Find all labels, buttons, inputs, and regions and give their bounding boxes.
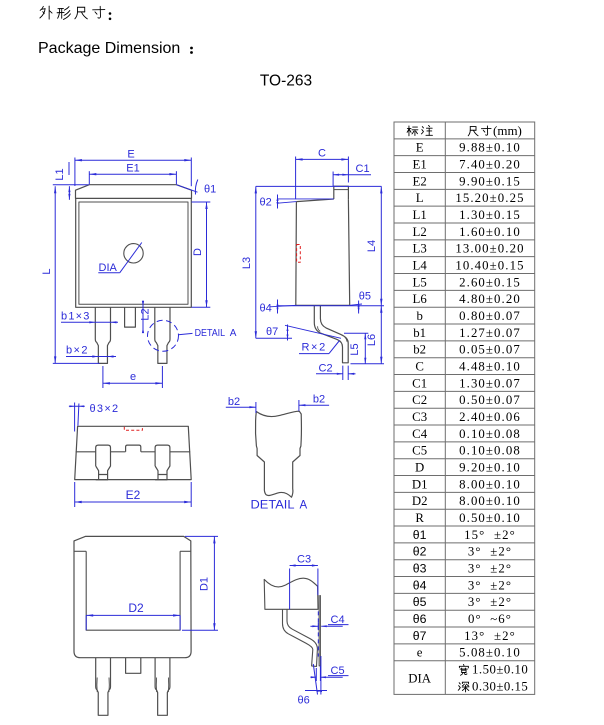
svg-text:D: D (415, 461, 424, 475)
svg-text:E2: E2 (413, 174, 427, 188)
svg-text:C3: C3 (412, 410, 427, 424)
svg-text:4.48±0.10: 4.48±0.10 (459, 359, 521, 373)
svg-text:L5: L5 (413, 275, 427, 289)
svg-text:b1: b1 (413, 326, 426, 340)
svg-text:A: A (300, 500, 308, 512)
svg-text:θ4: θ4 (413, 578, 427, 592)
svg-text:(mm): (mm) (493, 123, 522, 138)
svg-text:b×2: b×2 (66, 345, 89, 357)
svg-text:θ1: θ1 (204, 184, 216, 196)
svg-text:TO-263: TO-263 (260, 73, 312, 90)
svg-text:θ7: θ7 (413, 629, 427, 643)
svg-text:C1: C1 (412, 376, 427, 390)
svg-text:θ2: θ2 (260, 197, 272, 209)
svg-text:L4: L4 (413, 258, 428, 272)
svg-text:1.27±0.07: 1.27±0.07 (459, 326, 521, 340)
svg-text:1.30±0.15: 1.30±0.15 (459, 208, 521, 222)
svg-text:1.50±0.10: 1.50±0.10 (472, 663, 528, 677)
svg-text:L5: L5 (349, 343, 361, 355)
svg-text:L6: L6 (366, 334, 378, 346)
svg-text:3° ±2°: 3° ±2° (468, 595, 512, 609)
svg-text:L1: L1 (54, 168, 66, 180)
svg-text:E: E (127, 148, 134, 160)
svg-text:9.88±0.10: 9.88±0.10 (459, 141, 521, 155)
svg-text:L: L (416, 191, 424, 205)
svg-text:R×2: R×2 (302, 342, 327, 354)
svg-text:θ6: θ6 (413, 612, 427, 626)
svg-text:E1: E1 (413, 157, 427, 171)
svg-text:e: e (417, 646, 423, 660)
svg-text:L3: L3 (413, 242, 427, 256)
svg-text:C4: C4 (412, 427, 428, 441)
svg-text:4.80±0.20: 4.80±0.20 (459, 292, 521, 306)
svg-text:C1: C1 (356, 163, 370, 175)
svg-text:D1: D1 (412, 477, 428, 491)
svg-text:L2: L2 (413, 225, 427, 239)
svg-text:1.30±0.07: 1.30±0.07 (459, 376, 521, 390)
svg-text:C: C (415, 359, 424, 373)
svg-text:L4: L4 (366, 240, 378, 252)
svg-text:E2: E2 (126, 488, 141, 502)
svg-text:C: C (318, 147, 326, 159)
svg-text:b2: b2 (313, 394, 325, 406)
svg-text:Package Dimension: Package Dimension (38, 40, 180, 57)
svg-text:9.20±0.10: 9.20±0.10 (459, 461, 521, 475)
svg-text:3° ±2°: 3° ±2° (468, 562, 512, 576)
svg-text:A: A (230, 328, 237, 339)
svg-text:C5: C5 (331, 665, 345, 677)
svg-text:θ1: θ1 (413, 528, 427, 542)
svg-text:DETAIL: DETAIL (251, 500, 296, 512)
svg-text:0.10±0.08: 0.10±0.08 (459, 427, 521, 441)
svg-text:θ3×2: θ3×2 (90, 403, 120, 415)
svg-text:2.40±0.06: 2.40±0.06 (459, 410, 521, 424)
svg-text:D: D (192, 248, 204, 256)
svg-text:L2: L2 (140, 308, 152, 320)
svg-text:15.20±0.25: 15.20±0.25 (455, 191, 524, 205)
svg-text:2.60±0.15: 2.60±0.15 (459, 275, 521, 289)
svg-text:1.60±0.10: 1.60±0.10 (459, 225, 521, 239)
svg-text:b2: b2 (413, 343, 426, 357)
svg-text:θ2: θ2 (413, 545, 427, 559)
svg-text:E: E (416, 141, 424, 155)
svg-text:0.50±0.10: 0.50±0.10 (459, 511, 521, 525)
svg-text:DETAIL: DETAIL (195, 328, 226, 339)
svg-text:C2: C2 (412, 393, 427, 407)
svg-text:C2: C2 (319, 362, 333, 374)
svg-text:D2: D2 (128, 601, 144, 615)
svg-text:0° ~6°: 0° ~6° (468, 612, 512, 626)
svg-text:C4: C4 (331, 614, 345, 626)
svg-text:3° ±2°: 3° ±2° (468, 578, 512, 592)
svg-text:10.40±0.15: 10.40±0.15 (455, 258, 524, 272)
svg-text:7.40±0.20: 7.40±0.20 (459, 157, 521, 171)
svg-text:R: R (415, 511, 424, 525)
svg-text:8.00±0.10: 8.00±0.10 (459, 494, 521, 508)
svg-text:θ4: θ4 (260, 303, 272, 315)
svg-text:b1×3: b1×3 (61, 311, 91, 323)
svg-text:5.08±0.10: 5.08±0.10 (459, 646, 521, 660)
svg-text:0.10±0.08: 0.10±0.08 (459, 444, 521, 458)
svg-text:13° ±2°: 13° ±2° (464, 629, 516, 643)
svg-text:e: e (130, 371, 136, 383)
svg-text:0.30±0.15: 0.30±0.15 (472, 680, 528, 694)
svg-text:L6: L6 (413, 292, 428, 306)
svg-text:θ3: θ3 (413, 562, 427, 576)
svg-text:θ5: θ5 (413, 595, 427, 609)
svg-text:C5: C5 (412, 444, 427, 458)
svg-text:L: L (41, 268, 53, 274)
svg-text:L3: L3 (241, 257, 253, 269)
svg-text:D1: D1 (199, 577, 211, 591)
svg-text:b2: b2 (228, 396, 240, 408)
svg-text:15° ±2°: 15° ±2° (464, 528, 516, 542)
svg-text:9.90±0.15: 9.90±0.15 (459, 174, 521, 188)
svg-text:L1: L1 (413, 208, 427, 222)
svg-text:13.00±0.20: 13.00±0.20 (455, 242, 524, 256)
svg-text:3° ±2°: 3° ±2° (468, 545, 512, 559)
svg-text:DIA: DIA (408, 671, 432, 685)
svg-text:D2: D2 (412, 494, 428, 508)
svg-text:8.00±0.10: 8.00±0.10 (459, 477, 521, 491)
svg-text:b: b (416, 309, 422, 323)
svg-text:0.80±0.07: 0.80±0.07 (459, 309, 521, 323)
svg-text:0.05±0.07: 0.05±0.07 (459, 343, 521, 357)
svg-text:E1: E1 (126, 162, 139, 174)
svg-text:θ7: θ7 (266, 326, 278, 338)
svg-text:0.50±0.07: 0.50±0.07 (459, 393, 521, 407)
svg-text:C3: C3 (297, 554, 311, 566)
svg-text:θ5: θ5 (359, 291, 371, 303)
svg-text:θ6: θ6 (298, 695, 310, 707)
